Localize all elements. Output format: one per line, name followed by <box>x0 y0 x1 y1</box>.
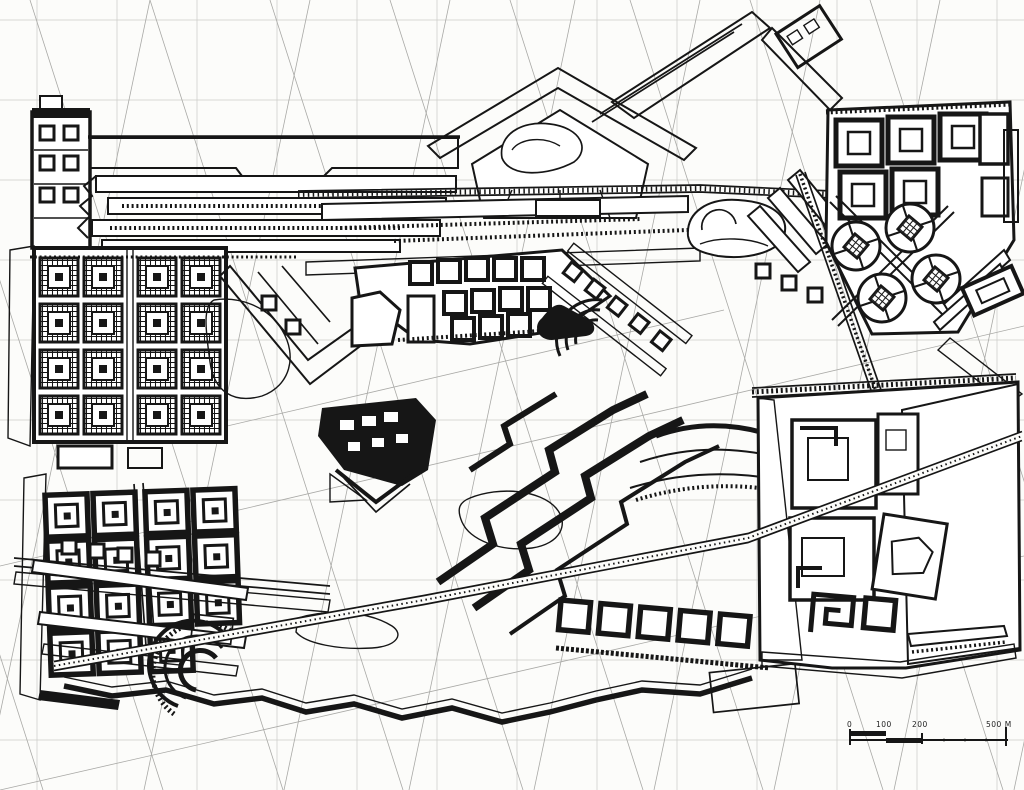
master-plan-drawing: 0 100 200 500 M <box>0 0 1024 790</box>
scale-segment-lowered <box>886 738 922 743</box>
small-annex-building <box>40 96 62 110</box>
south-annex <box>58 446 112 468</box>
city-block <box>286 320 300 334</box>
scale-label: 0 <box>847 720 852 729</box>
plaza-rectangle <box>536 200 600 216</box>
scale-dot <box>964 739 967 742</box>
scale-label: 200 <box>912 720 928 729</box>
scale-segment-raised <box>850 731 886 736</box>
city-block <box>808 288 822 302</box>
city-block <box>782 276 796 290</box>
sketch-page: 0 100 200 500 M <box>0 0 1024 790</box>
rotated-superblock <box>872 514 947 599</box>
tower-roof-band <box>32 108 90 118</box>
district-left-grid <box>8 246 226 468</box>
scale-label: 500 M <box>986 720 1012 729</box>
scale-dot <box>943 739 946 742</box>
scale-label: 100 <box>876 720 892 729</box>
scale-dot <box>985 739 988 742</box>
city-block <box>863 598 895 630</box>
city-block <box>262 296 276 310</box>
city-block <box>756 264 770 278</box>
slab-court <box>408 296 434 342</box>
